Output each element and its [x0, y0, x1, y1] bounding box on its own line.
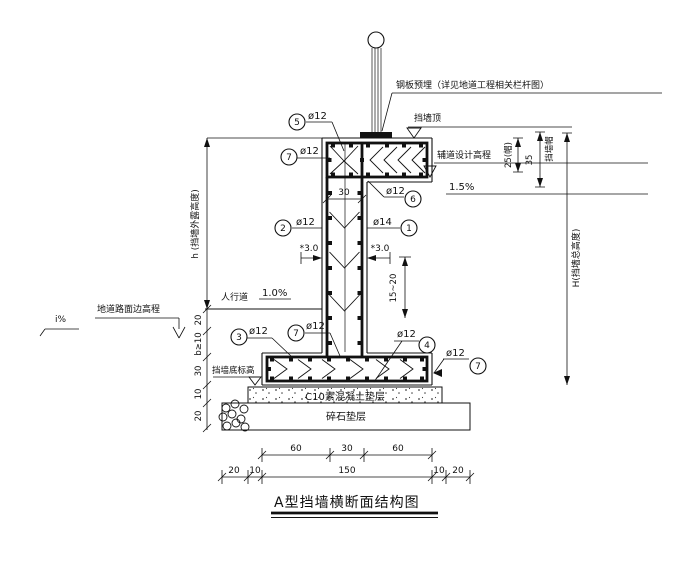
- rebar-tag-7b-number: 7: [293, 329, 299, 339]
- rebar-tag-6-number: 6: [410, 195, 416, 205]
- dim-chain-10: 10: [194, 389, 204, 400]
- dim-cap-25: 25(帽): [503, 142, 514, 168]
- dim-bottom1-30: 30: [341, 444, 353, 454]
- wall-top-level-icon: [407, 128, 421, 138]
- rebar-tag-3-size: ø12: [249, 326, 268, 337]
- dim-bottom2-10a: 10: [249, 466, 261, 476]
- stem-dimensions: 30 *3.0 *3.0 15~20: [300, 188, 411, 318]
- gravel-layer-label: 碎石垫层: [326, 410, 366, 423]
- wall-bottom-elevation-label: 挡墙底标高: [212, 365, 255, 376]
- dim-bottom1-60a: 60: [290, 444, 302, 454]
- dim-chain-20b: 20: [194, 411, 204, 422]
- aux-road-elevation-label: 辅道设计高程: [437, 149, 491, 161]
- right-dimensions: 25(帽) 35 挡墙帽 H(挡墙总高度): [503, 132, 582, 385]
- dim-bottom2-20a: 20: [228, 466, 240, 476]
- rebar-stirrups-and-dots: [267, 144, 427, 381]
- sidewalk-slope-label: 1.0%: [262, 288, 287, 299]
- rebar-tag-6-size: ø12: [386, 186, 405, 197]
- rebar-tag-7a-number: 7: [286, 153, 292, 163]
- embedded-steel-plate: [360, 132, 392, 138]
- dim-cover-left: *3.0: [300, 244, 319, 254]
- rebar-tag-7c-number: 7: [475, 362, 481, 372]
- rebar-tag-5-size: ø12: [308, 111, 327, 122]
- rebar-tag-4-size: ø12: [397, 329, 416, 340]
- rebar-tag-2-size: ø12: [296, 217, 315, 228]
- rebar-tag-4-number: 4: [424, 341, 430, 351]
- rebar-tag-7a-size: ø12: [300, 146, 319, 157]
- drawing-title: A型挡墙横断面结构图: [274, 495, 420, 511]
- road-slope-label: i%: [55, 315, 67, 325]
- dim-bottom2-10b: 10: [433, 466, 445, 476]
- dim-chain-30: 30: [194, 366, 204, 377]
- bedding-layers: C10素混凝土垫层 碎石垫层: [219, 387, 470, 431]
- drawing-title-block: A型挡墙横断面结构图: [271, 495, 438, 518]
- rebar-tag-7c-size: ø12: [446, 348, 465, 359]
- wall-cap-label: 挡墙帽: [544, 136, 555, 162]
- dim-total-height: H(挡墙总高度): [570, 229, 582, 288]
- bottom-dimensions: 60 30 60 20 10 150 10 20: [218, 444, 474, 484]
- retaining-wall-section-drawing: C10素混凝土垫层 碎石垫层 钢板预埋（详见地道工程相关栏杆图） 挡墙顶 辅道设…: [0, 0, 684, 568]
- dim-exposed-height: h (挡墙外露高度): [189, 189, 201, 259]
- dim-cover-right: *3.0: [371, 244, 390, 254]
- dim-stirrup-spacing: 15~20: [389, 274, 399, 303]
- dim-bottom2-20b: 20: [452, 466, 464, 476]
- rebar-tag-5-number: 5: [294, 118, 300, 128]
- c10-layer-label: C10素混凝土垫层: [305, 390, 385, 403]
- dim-chain-b10: b≥10: [194, 332, 204, 355]
- rebar-tag-1-size: ø14: [373, 217, 392, 228]
- dim-stem-width: 30: [338, 188, 350, 198]
- wall-bottom-level-icon: [249, 377, 261, 385]
- rebar-tag-3-number: 3: [236, 333, 242, 343]
- dim-bottom1-60b: 60: [392, 444, 404, 454]
- sidewalk-label: 人行道: [221, 291, 248, 303]
- drawing-canvas: C10素混凝土垫层 碎石垫层 钢板预埋（详见地道工程相关栏杆图） 挡墙顶 辅道设…: [0, 0, 684, 568]
- dim-chain-20a: 20: [194, 315, 204, 326]
- rebar-tag-1-number: 1: [406, 224, 412, 234]
- plate-embed-callout: 钢板预埋（详见地道工程相关栏杆图）: [396, 79, 549, 91]
- dim-bottom2-150: 150: [338, 466, 355, 476]
- aux-road-slope-label: 1.5%: [449, 182, 474, 193]
- dim-cap-35: 35: [525, 155, 535, 166]
- rebar-tag-2-number: 2: [280, 224, 286, 234]
- road-edge-elevation-label: 地道路面边高程: [97, 303, 160, 315]
- wall-top-label: 挡墙顶: [414, 112, 441, 124]
- rebar-tag-7b-size: ø12: [306, 321, 325, 332]
- railing-post: [360, 32, 392, 138]
